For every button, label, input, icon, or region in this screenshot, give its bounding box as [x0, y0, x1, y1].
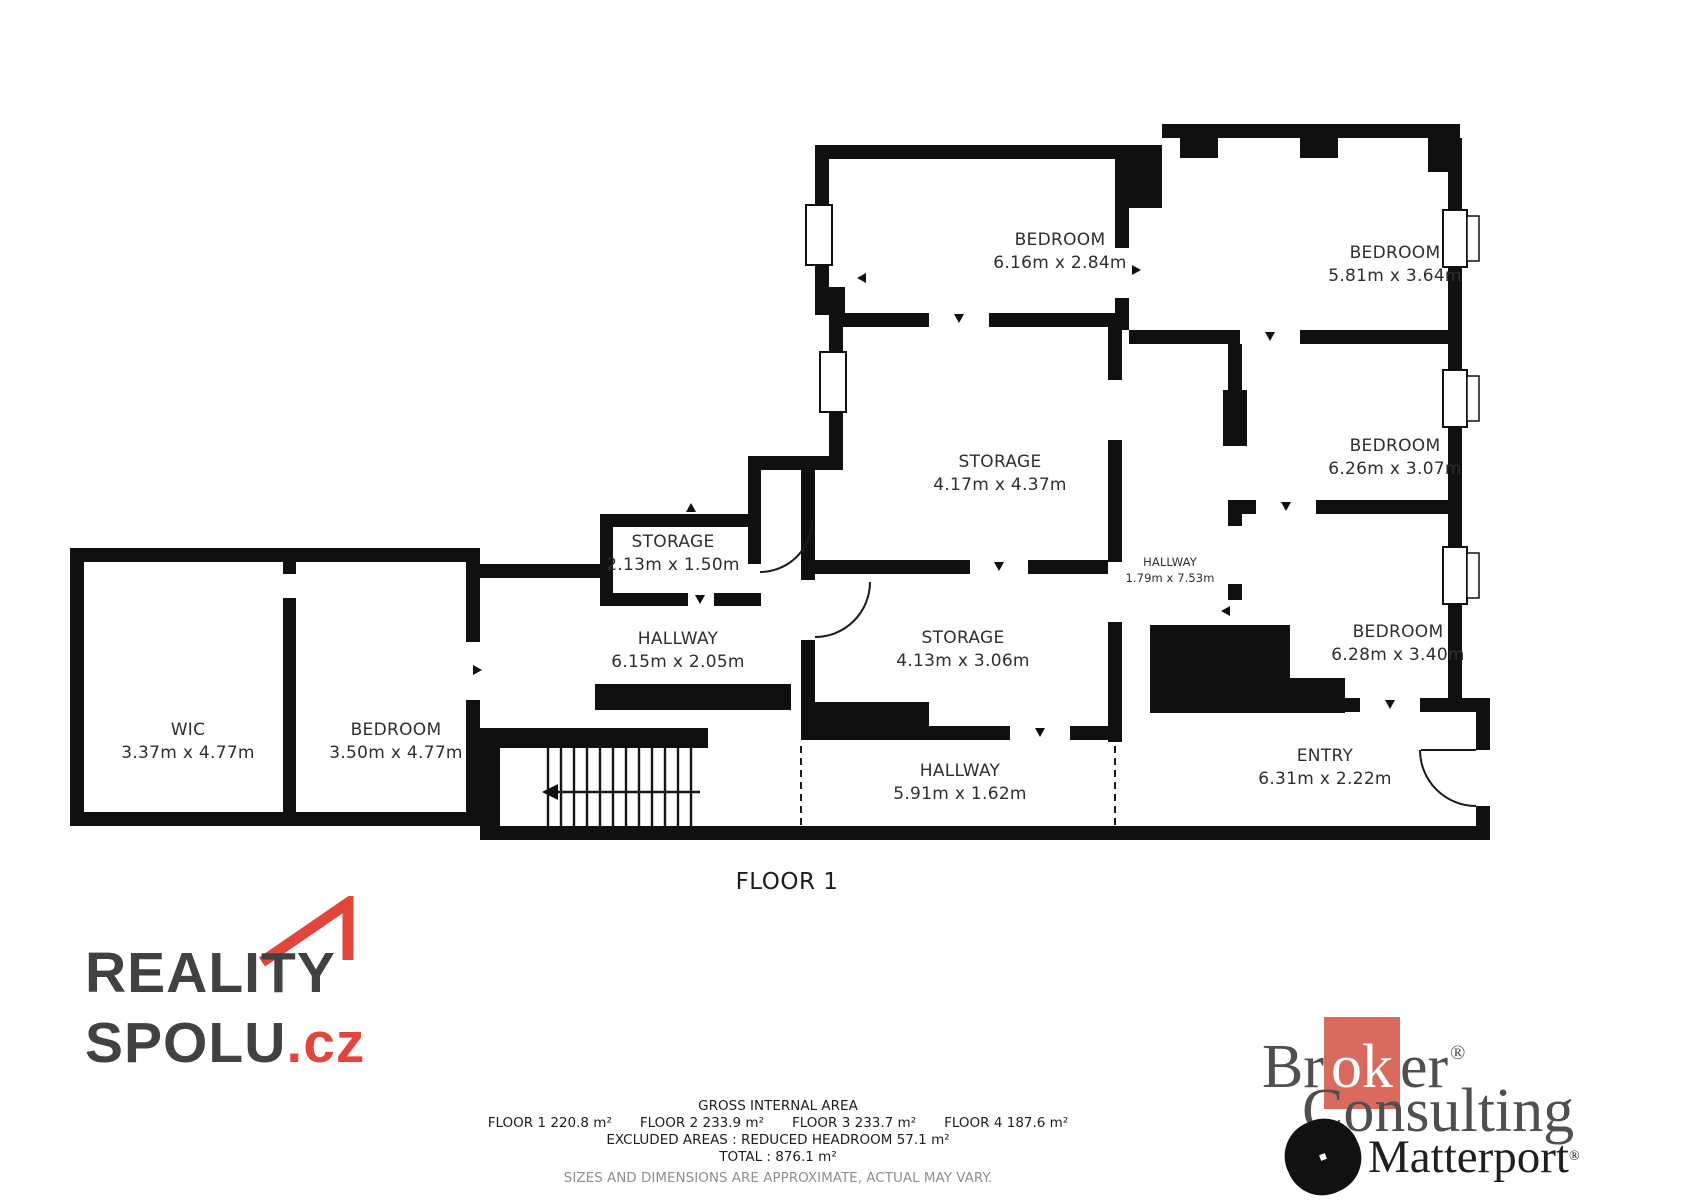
matterport-registered-mark: ®	[1569, 1149, 1580, 1165]
disclaimer: SIZES AND DIMENSIONS ARE APPROXIMATE, AC…	[474, 1170, 1083, 1187]
room-label: BEDROOM3.50m x 4.77m	[329, 719, 463, 765]
room-name: HALLWAY	[611, 628, 745, 651]
reality-logo-line1: REALITY	[85, 940, 336, 1006]
area-summary-title: GROSS INTERNAL AREA	[474, 1098, 1083, 1115]
room-dimensions: 6.31m x 2.22m	[1258, 768, 1392, 791]
room-label: ENTRY6.31m x 2.22m	[1258, 745, 1392, 791]
room-dimensions: 3.50m x 4.77m	[329, 742, 463, 765]
reality-logo-line2: SPOLU.cz	[85, 1010, 365, 1076]
room-dimensions: 6.28m x 3.40m	[1331, 644, 1465, 667]
matterport-wordmark: Matterport	[1368, 1130, 1569, 1184]
floorplan-page: BEDROOM6.16m x 2.84mBEDROOM5.81m x 3.64m…	[0, 0, 1697, 1200]
room-dimensions: 5.91m x 1.62m	[893, 783, 1027, 806]
stairs-direction-arrow	[542, 784, 558, 800]
matterport-pinwheel-icon	[1284, 1118, 1362, 1196]
area-summary: GROSS INTERNAL AREA FLOOR 1 220.8 m²FLOO…	[474, 1098, 1083, 1187]
room-dimensions: 6.16m x 2.84m	[993, 252, 1127, 275]
floor2-area: FLOOR 2 233.9 m²	[640, 1115, 764, 1131]
room-dimensions: 1.79m x 7.53m	[1125, 570, 1214, 586]
floor3-area: FLOOR 3 233.7 m²	[792, 1115, 916, 1131]
room-label: BEDROOM6.28m x 3.40m	[1331, 621, 1465, 667]
room-dimensions: 2.13m x 1.50m	[606, 554, 740, 577]
matterport-logo: Matterport ®	[1284, 1118, 1580, 1196]
room-name: STORAGE	[933, 451, 1067, 474]
room-label: HALLWAY5.91m x 1.62m	[893, 760, 1027, 806]
room-name: STORAGE	[896, 627, 1030, 650]
room-dimensions: 6.26m x 3.07m	[1328, 458, 1462, 481]
room-label: STORAGE4.17m x 4.37m	[933, 451, 1067, 497]
room-name: ENTRY	[1258, 745, 1392, 768]
room-label: STORAGE4.13m x 3.06m	[896, 627, 1030, 673]
room-name: HALLWAY	[893, 760, 1027, 783]
room-label: WIC3.37m x 4.77m	[121, 719, 255, 765]
room-label: STORAGE2.13m x 1.50m	[606, 531, 740, 577]
reality-spolu-logo: REALITY SPOLU.cz	[85, 896, 405, 1096]
room-label: HALLWAY6.15m x 2.05m	[611, 628, 745, 674]
room-name: STORAGE	[606, 531, 740, 554]
floor4-area: FLOOR 4 187.6 m²	[944, 1115, 1068, 1131]
walls	[70, 124, 1490, 840]
room-dimensions: 3.37m x 4.77m	[121, 742, 255, 765]
staircase	[542, 748, 700, 826]
room-name: HALLWAY	[1125, 554, 1214, 570]
room-label: BEDROOM5.81m x 3.64m	[1328, 242, 1462, 288]
floor-title: FLOOR 1	[736, 869, 839, 895]
reality-logo-cz: .cz	[286, 1011, 365, 1075]
room-dimensions: 5.81m x 3.64m	[1328, 265, 1462, 288]
room-label: BEDROOM6.26m x 3.07m	[1328, 435, 1462, 481]
room-dimensions: 4.17m x 4.37m	[933, 474, 1067, 497]
room-label: HALLWAY1.79m x 7.53m	[1125, 554, 1214, 586]
floor-areas: FLOOR 1 220.8 m²FLOOR 2 233.9 m²FLOOR 3 …	[474, 1115, 1083, 1132]
broker-registered-mark: ®	[1450, 1042, 1465, 1064]
room-name: BEDROOM	[329, 719, 463, 742]
floor1-area: FLOOR 1 220.8 m²	[488, 1115, 612, 1131]
room-dimensions: 6.15m x 2.05m	[611, 651, 745, 674]
excluded-areas: EXCLUDED AREAS : REDUCED HEADROOM 57.1 m…	[474, 1132, 1083, 1149]
room-label: BEDROOM6.16m x 2.84m	[993, 229, 1127, 275]
room-name: BEDROOM	[993, 229, 1127, 252]
total-area: TOTAL : 876.1 m²	[474, 1149, 1083, 1166]
room-name: WIC	[121, 719, 255, 742]
room-dimensions: 4.13m x 3.06m	[896, 650, 1030, 673]
room-name: BEDROOM	[1328, 435, 1462, 458]
reality-logo-spolu: SPOLU	[85, 1011, 286, 1075]
room-name: BEDROOM	[1331, 621, 1465, 644]
room-name: BEDROOM	[1328, 242, 1462, 265]
